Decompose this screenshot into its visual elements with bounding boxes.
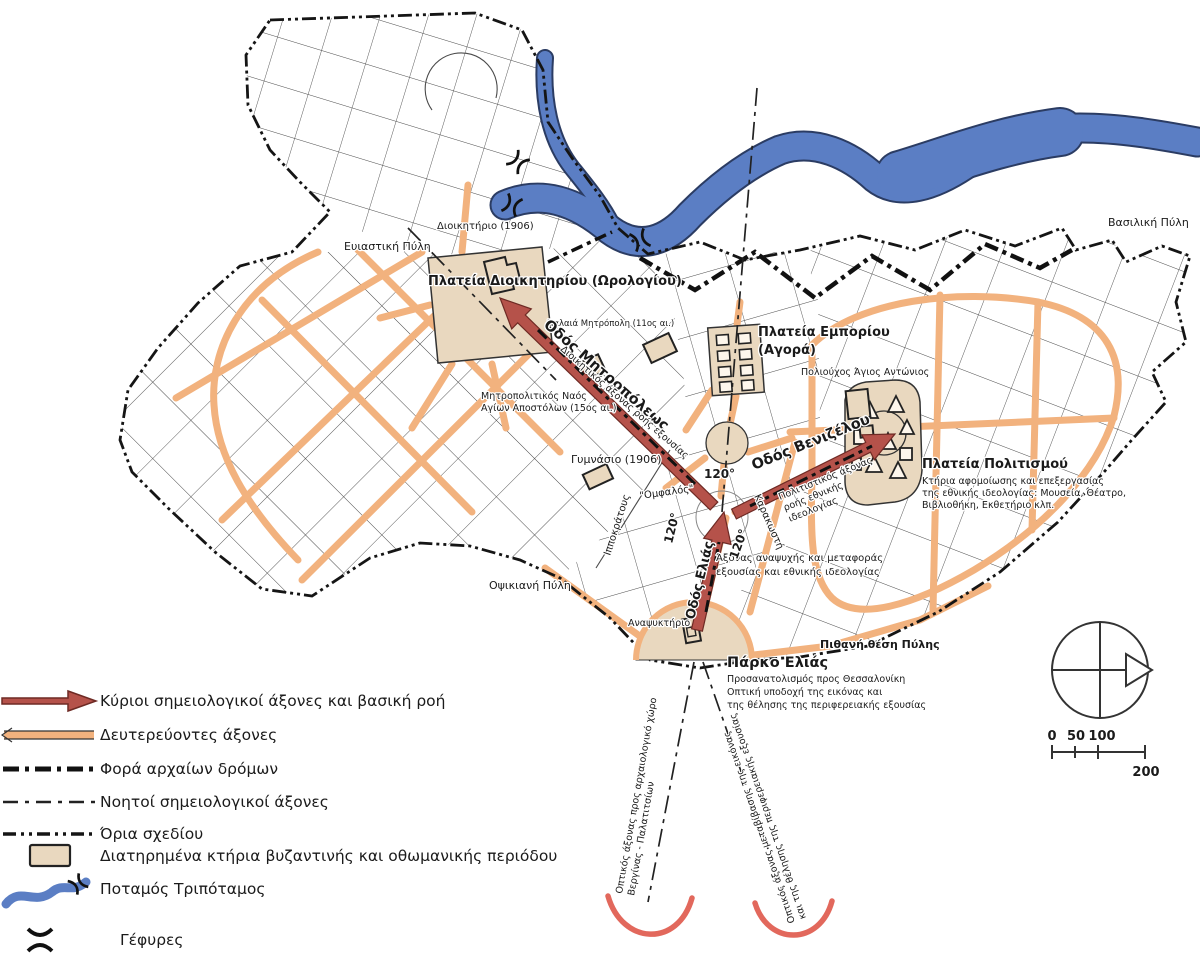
label-ktiria-3: Βιβλιοθήκη, Εκθετήριο κλπ. (922, 500, 1054, 511)
scale-0: 0 (1047, 729, 1056, 744)
river-tripotamos (505, 58, 1197, 242)
label-agora: (Αγορά) (758, 343, 816, 358)
map-drawing: 0 50 100 200 Διοικητήριο (1906) Ευιαστικ… (0, 0, 1200, 961)
label-plateia-politismou: Πλατεία Πολιτισμού (922, 457, 1068, 472)
label-poliouxos: Πολιούχος Άγιος Αντώνιος (801, 367, 929, 378)
compass-rose (1052, 622, 1152, 718)
label-parko-elias: Πάρκο Ελιάς (727, 655, 828, 671)
label-plateia-emporiou: Πλατεία Εμπορίου (758, 325, 890, 340)
east-arrow-icon (1126, 654, 1152, 686)
label-mitropolitikos-naos-2: Αγίων Αποστόλων (15ος αι.) (481, 403, 617, 414)
label-plateia-dioikitiriou: Πλατεία Διοικητηρίου (Ωρολογίου) (428, 274, 682, 289)
label-angle-1: 120° (704, 467, 735, 481)
scale-200: 200 (1132, 765, 1159, 780)
label-vasiliki-pyli: Βασιλική Πύλη (1108, 216, 1189, 229)
label-ktiria-1: Κτήρια αφομοίωσης και επεξεργασίας (922, 476, 1104, 487)
label-gymnasio: Γυμνάσιο (1906) (571, 453, 661, 466)
label-optiki-ypodoxi-1: Οπτική υποδοχή της εικόνας και (727, 687, 882, 698)
label-ktiria-2: της εθνικής ιδεολογίας: Μουσεία, Θέατρο, (922, 488, 1126, 499)
label-anapsyktirio: Αναψυκτήριο (628, 618, 690, 629)
label-optikos-right-1: Οπτικός άξονας μεταβίβασης της εικόνας (722, 730, 798, 925)
label-axonas-anapsyxis-2: εξουσίας και εθνικής ιδεολογίας (716, 566, 880, 578)
scale-100: 100 (1088, 729, 1115, 744)
scale-bar: 0 50 100 200 (1047, 729, 1159, 780)
label-prosanatolismos: Προσανατολισμός προς Θεσσαλονίκη (727, 674, 905, 685)
label-optikos-right-2: και της θέλησης της περιφερειακής εξουσί… (728, 712, 809, 921)
scale-50: 50 (1067, 729, 1085, 744)
label-optiki-ypodoxi-2: της θέλησης της περιφερειακής εξουσίας (727, 700, 926, 711)
city-plan-map: 0 50 100 200 Διοικητήριο (1906) Ευιαστικ… (0, 0, 1200, 961)
label-opsikiani-pyli: Οψικιανή Πύλη (489, 579, 571, 592)
label-mitropolitikos-naos-1: Μητροπολιτικός Ναός (481, 391, 587, 402)
label-dioikitirio: Διοικητήριο (1906) (437, 220, 534, 232)
label-eviastiki-pyli: Ευιαστική Πύλη (344, 240, 431, 253)
label-pithani-thesi-pylis: Πιθανή θέση Πύλης (820, 638, 940, 651)
label-palaia-mitropoli: Παλαιά Μητρόπολη (11ος αι.) (547, 318, 674, 329)
